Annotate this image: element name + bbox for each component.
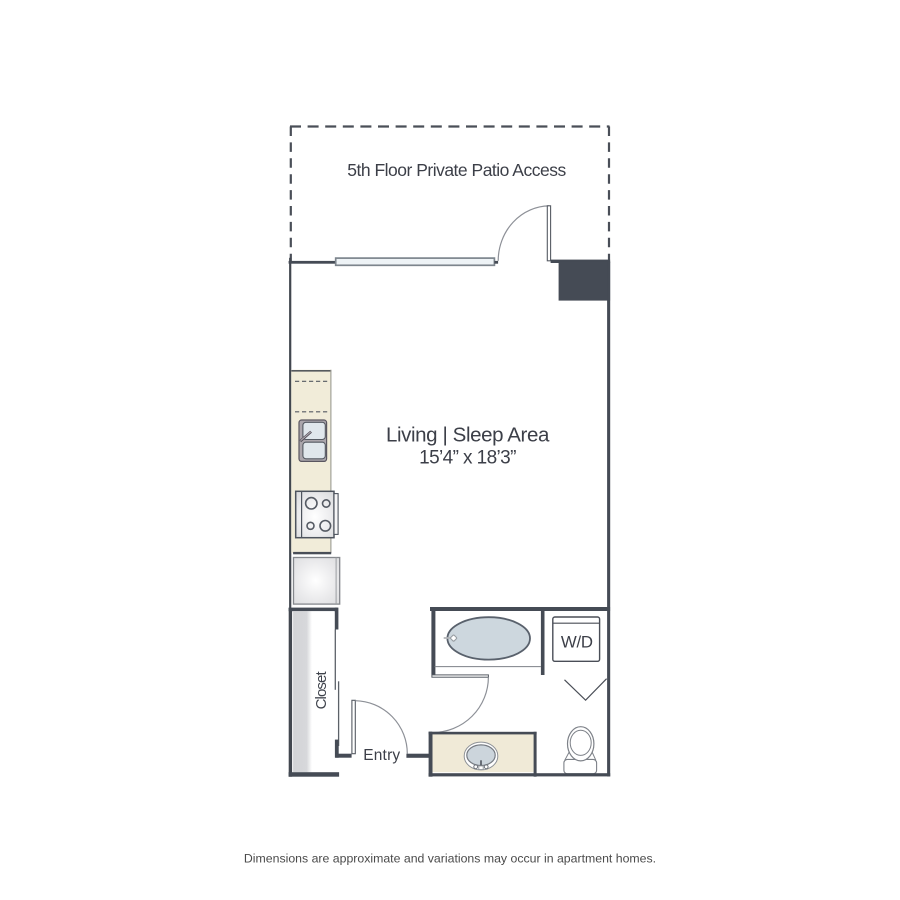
svg-text:Living | Sleep Area: Living | Sleep Area	[386, 424, 550, 447]
svg-text:Dimensions are approximate and: Dimensions are approximate and variation…	[244, 852, 656, 866]
svg-text:Entry: Entry	[363, 747, 400, 764]
svg-text:Closet: Closet	[313, 671, 330, 710]
svg-text:15’4” x 18’3”: 15’4” x 18’3”	[419, 448, 516, 469]
svg-text:5th Floor Private Patio Access: 5th Floor Private Patio Access	[347, 160, 566, 180]
svg-text:W/D: W/D	[561, 632, 593, 651]
